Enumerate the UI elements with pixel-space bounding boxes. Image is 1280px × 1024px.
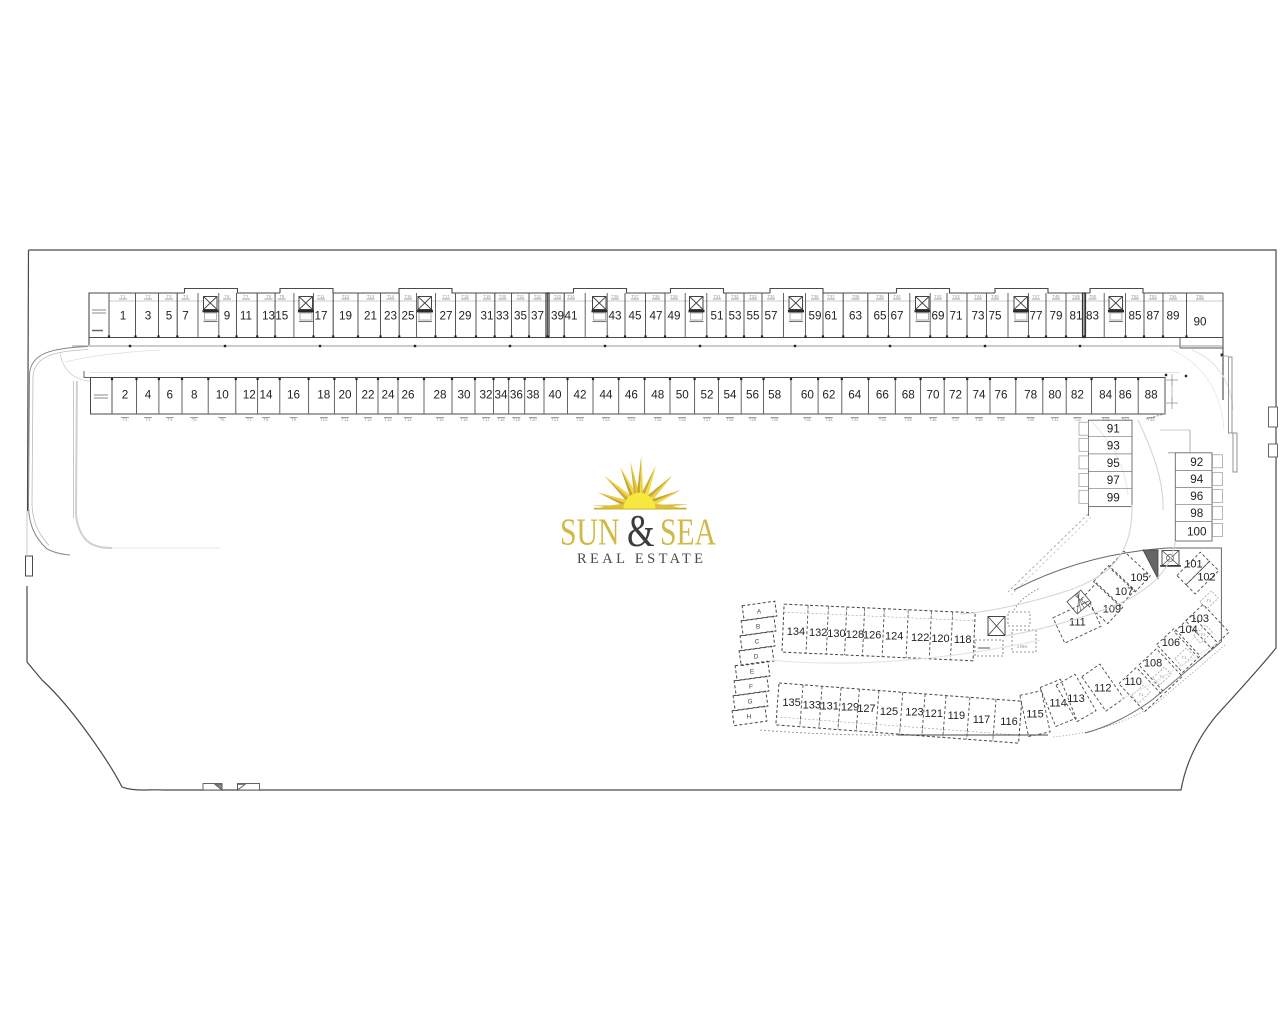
svg-text:T36: T36: [811, 294, 819, 299]
svg-text:135: 135: [782, 697, 800, 709]
svg-text:SUN: SUN: [560, 512, 620, 554]
svg-text:T39: T39: [876, 294, 884, 299]
svg-text:80: 80: [1048, 389, 1062, 402]
svg-text:121: 121: [925, 708, 943, 720]
svg-text:T24: T24: [628, 417, 636, 422]
svg-text:87: 87: [1146, 309, 1159, 322]
svg-text:44: 44: [599, 389, 613, 402]
svg-text:6: 6: [167, 389, 174, 402]
svg-text:T31: T31: [804, 417, 812, 422]
svg-text:T12: T12: [364, 417, 372, 422]
svg-text:115: 115: [1026, 708, 1044, 720]
svg-text:32: 32: [479, 389, 492, 402]
svg-text:74: 74: [972, 389, 986, 402]
svg-text:29: 29: [458, 309, 471, 322]
svg-text:T29: T29: [670, 294, 678, 299]
svg-text:50: 50: [676, 389, 690, 402]
svg-text:76: 76: [994, 389, 1007, 402]
svg-text:T24: T24: [567, 294, 575, 299]
svg-text:T21: T21: [551, 417, 559, 422]
svg-text:G: G: [747, 699, 752, 706]
svg-text:T44: T44: [1122, 417, 1130, 422]
svg-text:89: 89: [1166, 309, 1179, 322]
svg-text:T20: T20: [499, 294, 507, 299]
svg-text:62: 62: [822, 389, 835, 402]
svg-text:T19: T19: [513, 417, 521, 422]
svg-text:97: 97: [1107, 474, 1120, 487]
svg-text:T35: T35: [905, 417, 913, 422]
svg-text:67: 67: [890, 309, 903, 322]
svg-text:43: 43: [608, 309, 621, 322]
svg-text:119: 119: [948, 710, 966, 722]
svg-text:T28: T28: [652, 294, 660, 299]
svg-text:T26: T26: [611, 294, 619, 299]
svg-text:T33: T33: [851, 417, 859, 422]
svg-text:10: 10: [216, 389, 230, 402]
svg-text:7: 7: [182, 309, 189, 322]
svg-text:T1: T1: [1201, 632, 1206, 637]
svg-text:63: 63: [849, 309, 862, 322]
svg-text:T15: T15: [404, 294, 412, 299]
svg-text:99: 99: [1107, 492, 1120, 505]
svg-text:112: 112: [1094, 682, 1112, 694]
svg-text:93: 93: [1107, 439, 1120, 452]
svg-text:90: 90: [1193, 316, 1207, 329]
svg-text:T9: T9: [291, 417, 297, 422]
svg-text:69: 69: [931, 309, 944, 322]
svg-text:39: 39: [551, 309, 564, 322]
svg-text:11: 11: [240, 309, 252, 322]
svg-text:T1: T1: [1182, 655, 1187, 660]
svg-text:83: 83: [1086, 309, 1099, 322]
svg-text:T2: T2: [123, 417, 129, 422]
svg-text:T27: T27: [631, 294, 639, 299]
svg-text:8: 8: [191, 389, 198, 402]
svg-text:T17: T17: [442, 294, 450, 299]
svg-text:T40: T40: [1027, 417, 1035, 422]
svg-text:T29: T29: [749, 417, 757, 422]
svg-text:71: 71: [949, 309, 962, 322]
svg-text:T14: T14: [404, 417, 412, 422]
svg-text:91: 91: [1107, 422, 1120, 435]
svg-text:132: 132: [809, 627, 827, 639]
svg-text:D: D: [754, 654, 759, 661]
svg-text:T17: T17: [482, 417, 490, 422]
svg-text:131: 131: [821, 701, 839, 713]
svg-text:107: 107: [1115, 586, 1133, 598]
svg-text:T37: T37: [827, 294, 835, 299]
svg-text:14: 14: [259, 389, 273, 402]
svg-text:T37: T37: [952, 417, 960, 422]
svg-text:16: 16: [287, 389, 300, 402]
svg-text:134: 134: [787, 626, 805, 638]
svg-text:122: 122: [911, 632, 929, 644]
svg-text:T28: T28: [726, 417, 734, 422]
svg-text:T6: T6: [225, 294, 231, 299]
svg-text:T5: T5: [192, 417, 198, 422]
svg-text:19: 19: [339, 309, 352, 322]
svg-text:68: 68: [902, 389, 915, 402]
svg-text:94: 94: [1190, 473, 1204, 486]
svg-text:47: 47: [649, 309, 662, 322]
svg-text:57: 57: [764, 309, 777, 322]
svg-text:T31: T31: [713, 294, 721, 299]
svg-text:T38: T38: [975, 417, 983, 422]
svg-text:T14: T14: [387, 294, 395, 299]
svg-text:88: 88: [1145, 389, 1158, 402]
svg-text:B: B: [756, 624, 760, 631]
svg-text:T3: T3: [167, 294, 173, 299]
svg-text:T52: T52: [1131, 294, 1139, 299]
svg-text:53: 53: [728, 309, 741, 322]
svg-text:21: 21: [364, 309, 377, 322]
svg-text:101: 101: [1184, 559, 1202, 571]
svg-text:T19: T19: [483, 294, 491, 299]
svg-text:61: 61: [824, 309, 837, 322]
svg-text:52: 52: [700, 389, 713, 402]
svg-text:78: 78: [1024, 389, 1037, 402]
svg-text:124: 124: [885, 631, 903, 643]
svg-text:34: 34: [494, 389, 508, 402]
svg-text:49: 49: [667, 309, 680, 322]
svg-text:T4: T4: [183, 294, 189, 299]
svg-text:46: 46: [625, 389, 638, 402]
svg-text:3: 3: [145, 309, 152, 322]
svg-text:5: 5: [166, 309, 173, 322]
svg-text:98: 98: [1190, 507, 1203, 520]
svg-text:28: 28: [433, 389, 446, 402]
svg-text:84: 84: [1099, 389, 1113, 402]
svg-text:110: 110: [1124, 676, 1142, 688]
svg-text:51: 51: [710, 309, 723, 322]
svg-text:66: 66: [876, 389, 889, 402]
svg-text:33: 33: [496, 309, 509, 322]
svg-text:60: 60: [801, 389, 815, 402]
svg-text:T49: T49: [1072, 294, 1080, 299]
svg-text:T34: T34: [879, 417, 887, 422]
svg-text:127: 127: [857, 703, 875, 715]
svg-text:58: 58: [768, 389, 781, 402]
svg-text:85: 85: [1128, 309, 1142, 322]
svg-text:T16: T16: [460, 417, 468, 422]
svg-text:T44: T44: [974, 294, 982, 299]
svg-text:55: 55: [746, 309, 760, 322]
svg-text:15: 15: [275, 309, 289, 322]
svg-text:64: 64: [848, 389, 862, 402]
svg-text:126: 126: [863, 630, 881, 642]
svg-text:T22: T22: [576, 417, 584, 422]
svg-text:T13: T13: [384, 417, 392, 422]
svg-text:H: H: [747, 714, 752, 721]
svg-text:T25: T25: [654, 417, 662, 422]
svg-text:T18: T18: [497, 417, 505, 422]
svg-text:117: 117: [973, 714, 991, 726]
svg-text:40: 40: [548, 389, 562, 402]
svg-text:118: 118: [954, 634, 972, 646]
svg-text:T32: T32: [825, 417, 833, 422]
svg-text:T12: T12: [342, 294, 350, 299]
svg-text:T8: T8: [266, 294, 272, 299]
svg-text:41: 41: [564, 309, 577, 322]
svg-text:45: 45: [628, 309, 642, 322]
svg-text:2: 2: [122, 389, 129, 402]
svg-text:86: 86: [1119, 389, 1132, 402]
svg-text:17: 17: [314, 309, 327, 322]
svg-text:37: 37: [531, 309, 544, 322]
svg-text:C: C: [755, 639, 760, 646]
svg-text:T27: T27: [703, 417, 711, 422]
svg-text:73: 73: [971, 309, 984, 322]
svg-text:59: 59: [808, 309, 821, 322]
svg-text:T15: T15: [436, 417, 444, 422]
svg-text:T21: T21: [517, 294, 525, 299]
svg-text:27: 27: [439, 309, 452, 322]
svg-text:T55: T55: [1196, 294, 1204, 299]
svg-text:T7: T7: [244, 294, 250, 299]
svg-text:30: 30: [457, 389, 471, 402]
svg-text:100: 100: [1187, 526, 1207, 539]
svg-text:A: A: [757, 609, 762, 616]
svg-text:95: 95: [1107, 457, 1121, 470]
svg-text:T23: T23: [554, 294, 562, 299]
svg-text:123: 123: [905, 707, 923, 719]
svg-text:23: 23: [384, 309, 397, 322]
svg-text:T1: T1: [1139, 692, 1144, 697]
svg-text:26: 26: [401, 389, 414, 402]
svg-text:31: 31: [480, 309, 493, 322]
svg-text:T8: T8: [264, 417, 270, 422]
svg-text:77: 77: [1029, 309, 1042, 322]
svg-text:35: 35: [514, 309, 528, 322]
svg-text:24: 24: [381, 389, 395, 402]
svg-text:T48: T48: [1052, 294, 1060, 299]
svg-text:133: 133: [803, 699, 821, 711]
svg-text:42: 42: [573, 389, 586, 402]
svg-text:T38: T38: [852, 294, 860, 299]
svg-text:T32: T32: [731, 294, 739, 299]
svg-text:13: 13: [262, 309, 275, 322]
svg-text:T45: T45: [991, 294, 999, 299]
svg-text:9: 9: [224, 309, 231, 322]
svg-text:T11: T11: [318, 294, 326, 299]
svg-text:75: 75: [988, 309, 1002, 322]
svg-text:T43: T43: [952, 294, 960, 299]
svg-text:T3: T3: [146, 417, 152, 422]
svg-text:T10: T10: [320, 417, 328, 422]
svg-text:T20: T20: [529, 417, 537, 422]
svg-text:56: 56: [746, 389, 759, 402]
svg-text:70: 70: [926, 389, 940, 402]
svg-text:T26: T26: [679, 417, 687, 422]
svg-text:T41: T41: [1051, 417, 1059, 422]
svg-text:54: 54: [723, 389, 737, 402]
svg-text:130: 130: [827, 628, 845, 640]
svg-text:81: 81: [1069, 309, 1082, 322]
svg-text:125: 125: [880, 706, 898, 718]
svg-text:105: 105: [1130, 572, 1148, 584]
svg-text:22: 22: [361, 389, 374, 402]
svg-text:T7: T7: [247, 417, 253, 422]
svg-text:REAL ESTATE: REAL ESTATE: [577, 551, 703, 567]
svg-text:25: 25: [401, 309, 415, 322]
svg-text:T43: T43: [1102, 417, 1110, 422]
svg-text:4: 4: [145, 389, 152, 402]
svg-text:102: 102: [1197, 572, 1215, 584]
svg-text:T42: T42: [934, 294, 942, 299]
svg-text:SEA: SEA: [660, 512, 716, 554]
svg-text:T1: T1: [1207, 598, 1212, 603]
svg-text:38: 38: [526, 389, 539, 402]
svg-text:T23: T23: [602, 417, 610, 422]
svg-text:T30: T30: [771, 417, 779, 422]
svg-text:T1: T1: [121, 294, 127, 299]
svg-text:120: 120: [931, 633, 949, 645]
svg-text:T53: T53: [1149, 294, 1157, 299]
svg-text:116: 116: [1000, 716, 1018, 728]
svg-text:48: 48: [651, 389, 664, 402]
svg-text:T6: T6: [220, 417, 226, 422]
svg-text:T9: T9: [279, 294, 285, 299]
svg-text:T54: T54: [1169, 294, 1177, 299]
svg-text:18: 18: [317, 389, 330, 402]
svg-text:T18: T18: [461, 294, 469, 299]
svg-text:1: 1: [120, 309, 127, 322]
svg-text:F: F: [749, 684, 753, 691]
svg-text:72: 72: [949, 389, 962, 402]
svg-text:82: 82: [1071, 389, 1084, 402]
svg-text:108: 108: [1144, 658, 1162, 670]
svg-text:T42: T42: [1074, 417, 1082, 422]
svg-text:T33: T33: [749, 294, 757, 299]
svg-text:20: 20: [338, 389, 352, 402]
svg-text:T39: T39: [997, 417, 1005, 422]
svg-text:T36: T36: [929, 417, 937, 422]
svg-text:T11: T11: [342, 417, 350, 422]
svg-text:T47: T47: [1032, 294, 1040, 299]
svg-text:106: 106: [1162, 637, 1180, 649]
svg-text:128: 128: [846, 629, 864, 641]
svg-text:T4: T4: [167, 417, 173, 422]
svg-text:&: &: [627, 506, 655, 556]
svg-text:92: 92: [1190, 456, 1203, 469]
svg-text:12: 12: [243, 389, 256, 402]
svg-text:T13: T13: [367, 294, 375, 299]
svg-text:113: 113: [1067, 693, 1085, 705]
svg-text:T40: T40: [893, 294, 901, 299]
svg-text:T2: T2: [146, 294, 152, 299]
svg-text:E: E: [750, 669, 755, 676]
svg-text:65: 65: [873, 309, 887, 322]
svg-text:36: 36: [510, 389, 523, 402]
svg-text:T22: T22: [534, 294, 542, 299]
svg-text:T50: T50: [1089, 294, 1097, 299]
svg-text:79: 79: [1049, 309, 1062, 322]
svg-text:96: 96: [1190, 490, 1203, 503]
svg-text:T34: T34: [767, 294, 775, 299]
